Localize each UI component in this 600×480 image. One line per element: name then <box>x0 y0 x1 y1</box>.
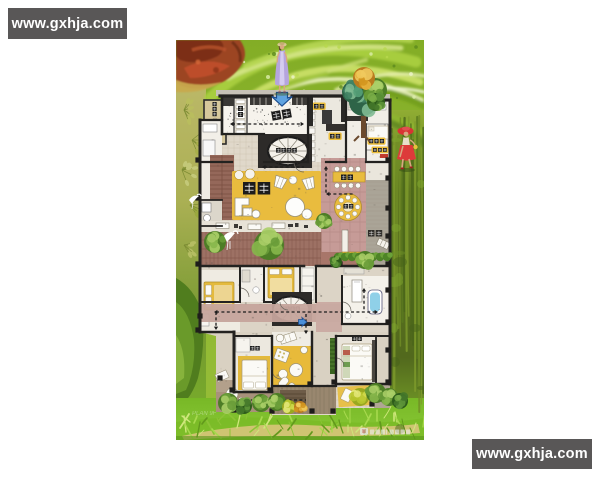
svg-text:PLAN 9F: PLAN 9F <box>192 411 217 417</box>
